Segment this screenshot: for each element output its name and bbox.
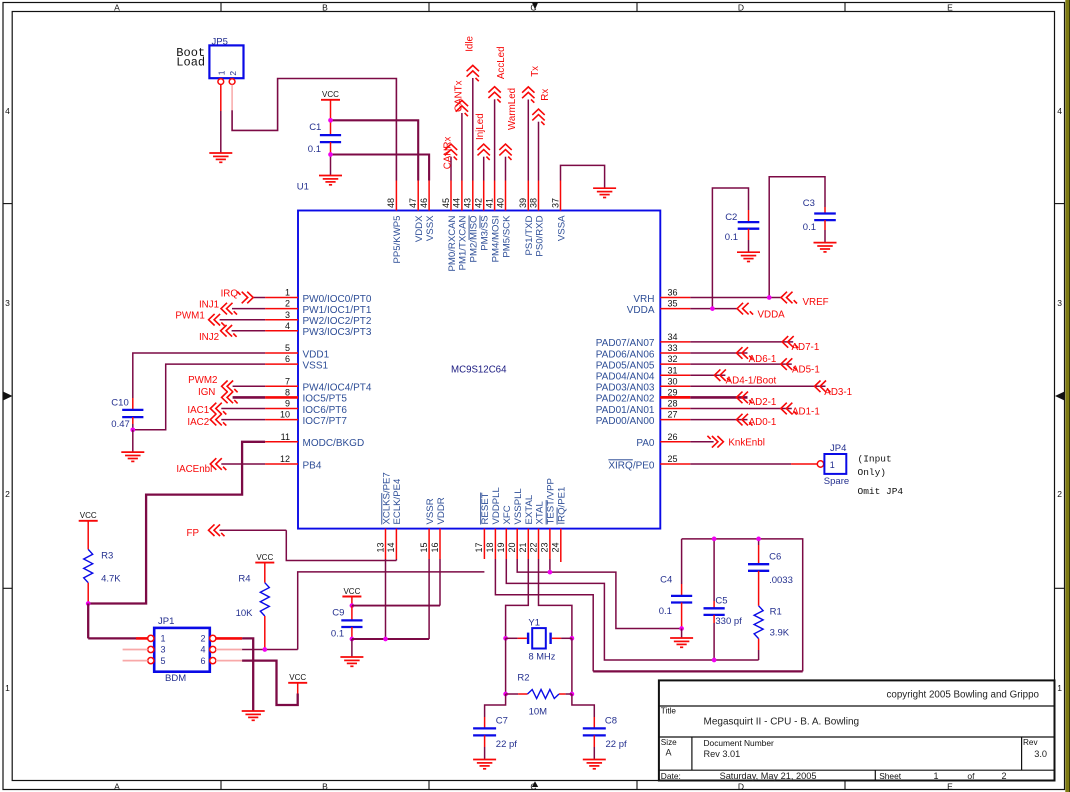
svg-text:5: 5 (161, 656, 166, 666)
svg-text:JP1: JP1 (158, 616, 174, 627)
svg-text:21: 21 (518, 542, 528, 552)
svg-text:MC9S12C64: MC9S12C64 (451, 365, 507, 376)
svg-text:(Input: (Input (858, 454, 892, 465)
svg-text:R1: R1 (770, 607, 782, 618)
svg-text:5: 5 (285, 343, 290, 353)
svg-text:3: 3 (161, 645, 166, 655)
svg-text:2: 2 (228, 71, 238, 76)
svg-text:Saturday, May 21, 2005: Saturday, May 21, 2005 (720, 771, 817, 781)
svg-text:2: 2 (1001, 771, 1006, 781)
svg-text:15: 15 (419, 542, 429, 552)
svg-text:BDM: BDM (165, 673, 186, 684)
svg-text:1: 1 (1057, 683, 1062, 693)
svg-text:2: 2 (285, 299, 290, 309)
svg-text:Tx: Tx (530, 66, 541, 77)
svg-text:PM0/RXCAN: PM0/RXCAN (447, 215, 458, 271)
svg-text:VSSA: VSSA (556, 215, 567, 241)
svg-text:IOC6/PT6: IOC6/PT6 (303, 405, 348, 416)
svg-text:33: 33 (668, 343, 678, 353)
svg-text:PAD00/AN00: PAD00/AN00 (596, 416, 655, 427)
svg-text:42: 42 (474, 198, 484, 208)
svg-text:20: 20 (507, 542, 517, 552)
svg-text:PA0: PA0 (636, 438, 655, 449)
svg-text:1: 1 (5, 683, 10, 693)
svg-text:24: 24 (551, 542, 561, 552)
svg-text:1: 1 (161, 634, 166, 644)
svg-text:PW4/IOC4/PT4: PW4/IOC4/PT4 (303, 383, 372, 394)
svg-text:VDDA: VDDA (758, 310, 786, 321)
svg-text:Y1: Y1 (528, 618, 540, 629)
svg-text:330 pf: 330 pf (715, 616, 742, 627)
svg-text:0.1: 0.1 (803, 222, 816, 233)
svg-text:AccLed: AccLed (496, 46, 507, 79)
svg-text:1: 1 (933, 771, 938, 781)
svg-text:RESET: RESET (480, 492, 491, 524)
svg-text:48: 48 (386, 198, 396, 208)
svg-text:VDDPLL: VDDPLL (491, 487, 502, 525)
svg-text:0.1: 0.1 (308, 144, 321, 155)
svg-text:XCLKS/PE7: XCLKS/PE7 (381, 472, 392, 524)
svg-text:C7: C7 (496, 716, 508, 727)
svg-text:Rev: Rev (1023, 738, 1038, 747)
svg-text:39: 39 (518, 198, 528, 208)
svg-text:9: 9 (285, 399, 290, 409)
svg-text:PAD01/AN01: PAD01/AN01 (596, 405, 655, 416)
svg-text:VCC: VCC (80, 511, 97, 520)
svg-text:Sheet: Sheet (879, 771, 902, 781)
svg-text:C5: C5 (715, 595, 727, 606)
svg-text:MODC/BKGD: MODC/BKGD (303, 438, 365, 449)
svg-text:INJ1: INJ1 (199, 299, 219, 310)
svg-text:R2: R2 (517, 673, 529, 684)
svg-text:C1: C1 (309, 122, 321, 133)
svg-text:IOC7/PT7: IOC7/PT7 (303, 416, 348, 427)
svg-text:XIRQ/PE0: XIRQ/PE0 (608, 460, 655, 471)
svg-text:D: D (738, 781, 744, 791)
svg-text:IRQ/PE1: IRQ/PE1 (557, 487, 568, 525)
svg-text:TEST/VPP: TEST/VPP (546, 478, 557, 524)
svg-text:C6: C6 (769, 552, 781, 563)
svg-text:B: B (322, 2, 328, 12)
svg-text:IAC1: IAC1 (187, 405, 209, 416)
svg-text:AD1-1: AD1-1 (792, 407, 820, 418)
svg-text:PAD04/AN04: PAD04/AN04 (596, 372, 655, 383)
svg-text:PW2/IOC2/PT2: PW2/IOC2/PT2 (303, 316, 372, 327)
svg-text:Omit JP4: Omit JP4 (858, 486, 904, 497)
svg-text:30: 30 (668, 376, 678, 386)
svg-text:38: 38 (528, 198, 538, 208)
svg-text:31: 31 (668, 365, 678, 375)
svg-text:46: 46 (419, 198, 429, 208)
svg-text:4: 4 (285, 321, 290, 331)
svg-text:4: 4 (200, 645, 205, 655)
svg-text:AD0-1: AD0-1 (749, 417, 777, 428)
svg-text:Idle: Idle (464, 35, 475, 51)
svg-text:R3: R3 (101, 551, 113, 562)
svg-text:41: 41 (484, 198, 494, 208)
svg-text:IRQ: IRQ (221, 289, 239, 300)
svg-text:13: 13 (375, 542, 385, 552)
svg-text:14: 14 (386, 542, 396, 552)
svg-text:17: 17 (474, 542, 484, 552)
svg-text:of: of (967, 771, 975, 781)
svg-text:Rx: Rx (540, 89, 551, 101)
svg-text:E: E (947, 2, 953, 12)
svg-text:PW0/IOC0/PT0: PW0/IOC0/PT0 (303, 294, 372, 305)
svg-text:VSSR: VSSR (425, 498, 436, 524)
svg-text:22 pf: 22 pf (606, 739, 627, 750)
svg-text:A: A (114, 781, 120, 791)
svg-text:VCC: VCC (322, 90, 339, 99)
svg-text:U1: U1 (297, 182, 309, 193)
svg-text:3: 3 (1057, 298, 1062, 308)
svg-text:AD7-1: AD7-1 (792, 342, 820, 353)
svg-text:37: 37 (550, 198, 560, 208)
svg-text:VDDR: VDDR (436, 497, 447, 524)
svg-text:8 MHz: 8 MHz (529, 652, 556, 662)
svg-text:25: 25 (668, 454, 678, 464)
svg-text:C4: C4 (660, 575, 672, 586)
svg-text:VRH: VRH (633, 294, 654, 305)
svg-text:35: 35 (668, 299, 678, 309)
svg-text:VREF: VREF (803, 297, 829, 308)
svg-text:INJ2: INJ2 (199, 332, 219, 343)
svg-text:AD2-1: AD2-1 (749, 397, 777, 408)
svg-text:A: A (114, 2, 120, 12)
svg-text:XFC: XFC (502, 505, 513, 524)
svg-text:40: 40 (495, 198, 505, 208)
svg-text:Spare: Spare (824, 476, 849, 487)
svg-text:6: 6 (200, 656, 205, 666)
svg-text:4: 4 (5, 106, 10, 116)
svg-text:8: 8 (285, 388, 290, 398)
svg-text:36: 36 (668, 288, 678, 298)
svg-text:0.1: 0.1 (659, 606, 672, 617)
svg-text:27: 27 (668, 410, 678, 420)
svg-text:VSSPLL: VSSPLL (513, 488, 524, 525)
svg-text:16: 16 (430, 542, 440, 552)
svg-text:2: 2 (1057, 489, 1062, 499)
svg-text:4.7K: 4.7K (101, 574, 121, 585)
svg-text:PAD07/AN07: PAD07/AN07 (596, 338, 655, 349)
svg-text:VDDX: VDDX (414, 215, 425, 242)
svg-text:22 pf: 22 pf (496, 739, 517, 750)
svg-text:29: 29 (668, 388, 678, 398)
svg-text:C10: C10 (111, 398, 128, 409)
svg-text:VSSX: VSSX (425, 215, 436, 241)
svg-text:PM4/MOSI: PM4/MOSI (490, 216, 501, 263)
svg-text:6: 6 (285, 354, 290, 364)
svg-text:AD4-1/Boot: AD4-1/Boot (726, 376, 777, 387)
svg-text:IACEnbl: IACEnbl (176, 464, 212, 475)
svg-text:Only): Only) (858, 467, 887, 478)
svg-text:KnkEnbl: KnkEnbl (728, 437, 765, 448)
svg-text:23: 23 (540, 542, 550, 552)
svg-text:PAD02/AN02: PAD02/AN02 (596, 394, 655, 405)
svg-text:34: 34 (668, 332, 678, 342)
svg-text:Date:: Date: (661, 771, 681, 781)
svg-text:43: 43 (463, 198, 473, 208)
svg-text:Size: Size (661, 738, 677, 747)
svg-text:2: 2 (5, 489, 10, 499)
svg-text:PWM2: PWM2 (188, 375, 217, 386)
svg-text:CANTx: CANTx (453, 80, 464, 112)
svg-text:3.9K: 3.9K (770, 628, 790, 639)
svg-text:D: D (738, 2, 744, 12)
svg-text:3: 3 (5, 298, 10, 308)
svg-text:Document Number: Document Number (704, 738, 774, 748)
svg-text:A: A (665, 748, 671, 758)
svg-text:47: 47 (408, 198, 418, 208)
svg-text:0.47: 0.47 (111, 419, 130, 430)
svg-text:ECLK/PE4: ECLK/PE4 (392, 478, 403, 525)
svg-text:44: 44 (452, 198, 462, 208)
svg-text:1: 1 (285, 288, 290, 298)
svg-text:10K: 10K (236, 608, 254, 619)
svg-text:45: 45 (441, 198, 451, 208)
svg-text:3.0: 3.0 (1034, 749, 1047, 759)
svg-text:B: B (322, 781, 328, 791)
svg-text:PW1/IOC1/PT1: PW1/IOC1/PT1 (303, 305, 372, 316)
svg-text:PWM1: PWM1 (175, 311, 204, 322)
svg-text:PAD06/AN06: PAD06/AN06 (596, 349, 655, 360)
svg-text:AD3-1: AD3-1 (824, 387, 852, 398)
svg-text:WarmLed: WarmLed (507, 88, 518, 130)
svg-text:IOC5/PT5: IOC5/PT5 (303, 394, 348, 405)
svg-text:12: 12 (280, 454, 290, 464)
svg-text:CANRx: CANRx (443, 137, 454, 170)
svg-text:11: 11 (281, 432, 290, 442)
svg-text:PW3/IOC3/PT3: PW3/IOC3/PT3 (303, 327, 372, 338)
svg-text:19: 19 (496, 542, 506, 552)
svg-text:PM5/SCK: PM5/SCK (501, 215, 512, 258)
svg-text:VCC: VCC (289, 673, 306, 682)
svg-text:Title: Title (661, 707, 677, 716)
svg-text:Load: Load (176, 55, 205, 69)
svg-text:E: E (947, 781, 953, 791)
svg-text:PAD05/AN05: PAD05/AN05 (596, 360, 655, 371)
svg-text:FP: FP (186, 528, 199, 539)
svg-text:IGN: IGN (198, 387, 215, 398)
svg-text:PP5/KWP5: PP5/KWP5 (392, 216, 403, 264)
svg-text:JP4: JP4 (830, 443, 846, 454)
svg-text:PM2/MISO: PM2/MISO (469, 216, 480, 263)
svg-text:0.1: 0.1 (725, 232, 738, 243)
svg-text:22: 22 (528, 542, 538, 552)
svg-text:C9: C9 (332, 608, 344, 619)
svg-text:VCC: VCC (343, 587, 360, 596)
svg-text:PM1/TXCAN: PM1/TXCAN (458, 215, 469, 270)
svg-text:PAD03/AN03: PAD03/AN03 (596, 383, 655, 394)
svg-text:26: 26 (668, 432, 678, 442)
svg-text:2: 2 (200, 634, 205, 644)
svg-text:1: 1 (216, 70, 226, 75)
svg-text:18: 18 (485, 542, 495, 552)
svg-text:C8: C8 (605, 716, 617, 727)
svg-text:PS0/RXD: PS0/RXD (534, 215, 545, 256)
svg-text:4: 4 (1057, 106, 1062, 116)
svg-text:10M: 10M (529, 707, 548, 718)
svg-text:copyright 2005 Bowling and Gri: copyright 2005 Bowling and Grippo (887, 690, 1040, 701)
svg-text:XTAL: XTAL (534, 501, 545, 525)
svg-text:JP5: JP5 (212, 37, 228, 48)
svg-text:Megasquirt II - CPU - B. A. Bo: Megasquirt II - CPU - B. A. Bowling (704, 717, 860, 728)
svg-text:VDD1: VDD1 (303, 349, 330, 360)
svg-text:IAC2: IAC2 (187, 417, 209, 428)
svg-text:28: 28 (668, 399, 678, 409)
svg-text:AD5-1: AD5-1 (792, 365, 820, 376)
svg-text:PB4: PB4 (303, 460, 322, 471)
svg-text:32: 32 (668, 354, 678, 364)
svg-text:VDDA: VDDA (627, 305, 655, 316)
svg-text:VCC: VCC (256, 553, 273, 562)
svg-text:1: 1 (830, 460, 835, 470)
svg-text:C3: C3 (803, 198, 815, 209)
svg-text:.0033: .0033 (769, 575, 793, 586)
svg-text:C2: C2 (725, 212, 737, 223)
svg-text:R4: R4 (238, 574, 250, 585)
svg-text:10: 10 (280, 410, 290, 420)
svg-text:VSS1: VSS1 (303, 360, 329, 371)
svg-text:7: 7 (285, 376, 290, 386)
svg-text:PM3/SS: PM3/SS (480, 216, 491, 251)
svg-text:Rev 3.01: Rev 3.01 (704, 749, 741, 759)
svg-text:InjLed: InjLed (475, 113, 486, 140)
svg-text:3: 3 (285, 310, 290, 320)
svg-text:0.1: 0.1 (331, 629, 344, 640)
